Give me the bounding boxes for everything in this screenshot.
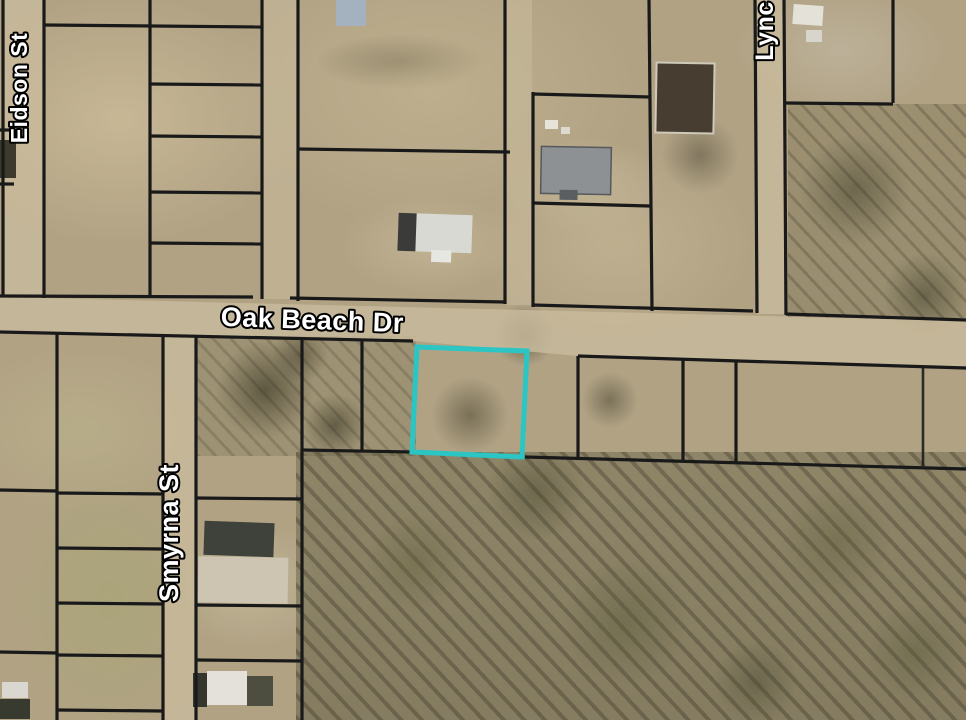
building-gray-house <box>540 146 611 200</box>
parcel-map-overlay: Eidson St Oak Beach Dr Smyrna St Lync <box>0 0 966 720</box>
road-oak-beach-dr <box>0 297 966 367</box>
building-mobile-home <box>397 213 473 264</box>
building-white-shed <box>193 671 273 707</box>
road-surfaces <box>0 0 966 720</box>
lane-strip <box>263 0 297 299</box>
building-dark-roof <box>655 62 714 133</box>
highlighted-parcel-outline <box>412 347 527 457</box>
street-label-oak-beach: Oak Beach Dr <box>220 302 404 338</box>
parcel-boundary-lines-south <box>0 333 966 720</box>
small-objects-near-gray-house <box>545 120 570 134</box>
street-label-eidson: Eidson St <box>6 33 32 144</box>
street-label-smyrna: Smyrna St <box>154 464 184 602</box>
building-bottom-house <box>198 521 289 604</box>
street-label-lync: Lync <box>751 1 779 60</box>
building-blue-roof-top <box>336 0 366 26</box>
structures-top-right <box>792 4 823 42</box>
aerial-parcel-map[interactable]: Eidson St Oak Beach Dr Smyrna St Lync <box>0 0 966 720</box>
